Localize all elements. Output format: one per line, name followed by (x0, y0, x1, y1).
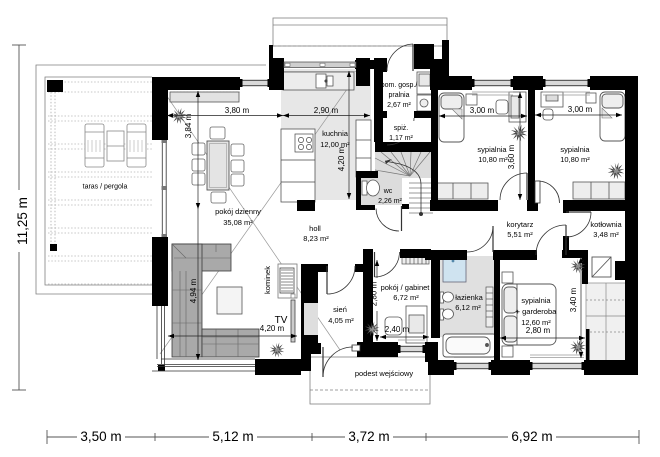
svg-text:4,20 m: 4,20 m (260, 324, 285, 333)
svg-text:3,72 m: 3,72 m (348, 429, 389, 444)
svg-text:3,50 m: 3,50 m (80, 429, 121, 444)
svg-text:spiż.: spiż. (394, 125, 408, 132)
svg-text:2,80 m: 2,80 m (370, 281, 379, 306)
svg-text:sień: sień (333, 305, 347, 314)
svg-text:pokój dzienny: pokój dzienny (215, 207, 261, 216)
svg-text:2,67 m²: 2,67 m² (387, 102, 411, 109)
svg-text:5,51 m²: 5,51 m² (507, 230, 533, 239)
svg-text:6,12 m²: 6,12 m² (455, 303, 481, 312)
svg-text:sypialnia: sypialnia (521, 296, 551, 305)
svg-text:3,80 m: 3,80 m (225, 106, 250, 115)
svg-text:kotłownia: kotłownia (590, 220, 622, 229)
svg-text:10,80 m²: 10,80 m² (478, 155, 508, 164)
svg-text:35,08 m²: 35,08 m² (223, 218, 253, 227)
svg-text:1,17 m²: 1,17 m² (389, 135, 413, 142)
svg-text:2,90 m: 2,90 m (314, 106, 339, 115)
svg-text:kominek: kominek (263, 266, 272, 294)
svg-text:sypialnia: sypialnia (477, 145, 507, 154)
svg-text:pralnia: pralnia (388, 92, 409, 99)
svg-text:korytarz: korytarz (507, 220, 534, 229)
svg-text:3,84 m: 3,84 m (184, 113, 193, 138)
svg-text:podest wejściowy: podest wejściowy (355, 369, 414, 378)
svg-text:sypialnia: sypialnia (560, 145, 590, 154)
svg-text:8,23 m²: 8,23 m² (303, 234, 329, 243)
svg-text:pom. gosp./: pom. gosp./ (381, 82, 418, 89)
svg-text:2,40 m: 2,40 m (385, 325, 410, 334)
svg-text:10,80 m²: 10,80 m² (560, 155, 590, 164)
svg-text:4,94 m: 4,94 m (189, 278, 198, 303)
svg-text:łazienka: łazienka (455, 293, 483, 302)
svg-text:2,26 m²: 2,26 m² (378, 198, 402, 205)
svg-text:11,25 m: 11,25 m (15, 197, 30, 245)
svg-text:3,00 m: 3,00 m (470, 106, 495, 115)
svg-text:+ garderoba: + garderoba (516, 307, 557, 316)
svg-text:kuchnia: kuchnia (322, 129, 349, 138)
svg-text:pokój / gabinet: pokój / gabinet (381, 283, 431, 292)
svg-text:holl: holl (309, 224, 321, 233)
svg-text:taras / pergola: taras / pergola (83, 184, 128, 191)
svg-text:3,48 m²: 3,48 m² (593, 230, 619, 239)
svg-text:3,00 m: 3,00 m (568, 105, 593, 114)
svg-text:3,60 m: 3,60 m (507, 144, 516, 169)
svg-text:wc: wc (383, 188, 393, 195)
svg-text:2,80 m: 2,80 m (526, 326, 551, 335)
svg-text:6,92 m: 6,92 m (511, 429, 552, 444)
svg-text:5,12 m: 5,12 m (212, 429, 253, 444)
svg-text:6,72 m²: 6,72 m² (393, 293, 419, 302)
svg-text:3,40 m: 3,40 m (569, 287, 578, 312)
svg-text:4,05 m²: 4,05 m² (328, 316, 354, 325)
svg-text:4,20 m: 4,20 m (337, 146, 346, 171)
